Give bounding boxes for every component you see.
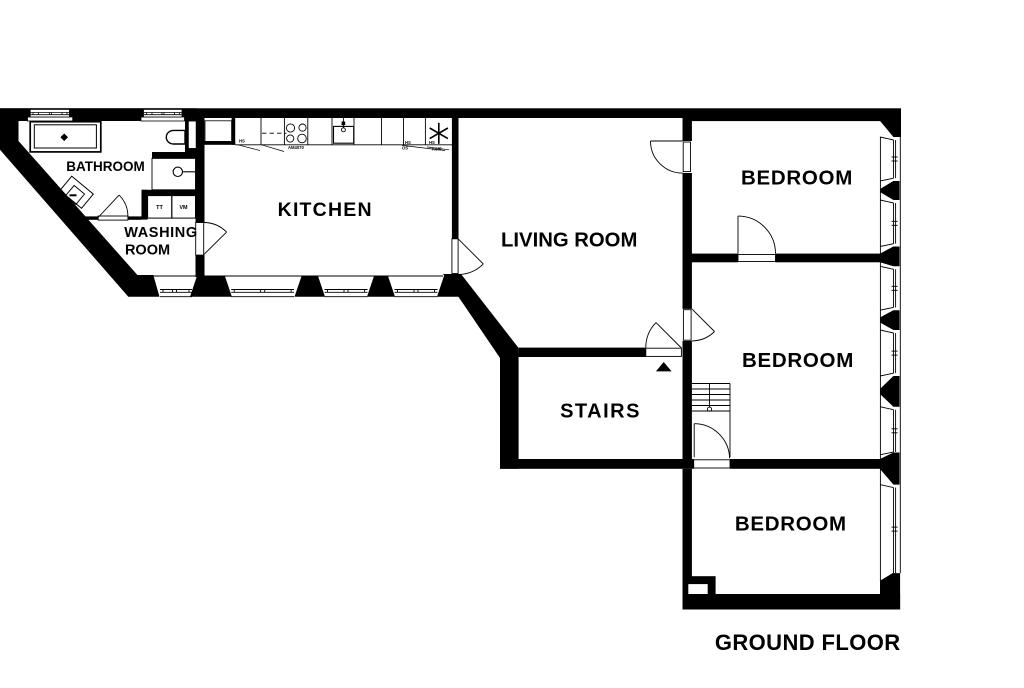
svg-text:BATHROOM: BATHROOM <box>66 159 145 174</box>
svg-text:BEDROOM: BEDROOM <box>741 166 853 189</box>
svg-text:STAIRS: STAIRS <box>560 401 641 423</box>
svg-text:HS: HS <box>405 140 411 145</box>
svg-text:ROOM: ROOM <box>125 242 170 258</box>
svg-text:GROUND FLOOR: GROUND FLOOR <box>715 630 901 655</box>
svg-text:KITCHEN: KITCHEN <box>278 199 373 221</box>
svg-text:BEDROOM: BEDROOM <box>742 349 854 372</box>
svg-text:HS: HS <box>239 139 245 144</box>
svg-text:AM4070: AM4070 <box>288 145 304 150</box>
svg-text:TT: TT <box>156 205 163 211</box>
svg-text:WASHING: WASHING <box>124 225 197 241</box>
svg-text:KS/F: KS/F <box>432 147 442 152</box>
svg-text:VM: VM <box>179 205 188 211</box>
svg-text:BEDROOM: BEDROOM <box>735 513 847 536</box>
svg-text:HS: HS <box>429 140 435 145</box>
svg-text:OS: OS <box>402 146 408 151</box>
svg-text:LIVING ROOM: LIVING ROOM <box>501 229 637 251</box>
